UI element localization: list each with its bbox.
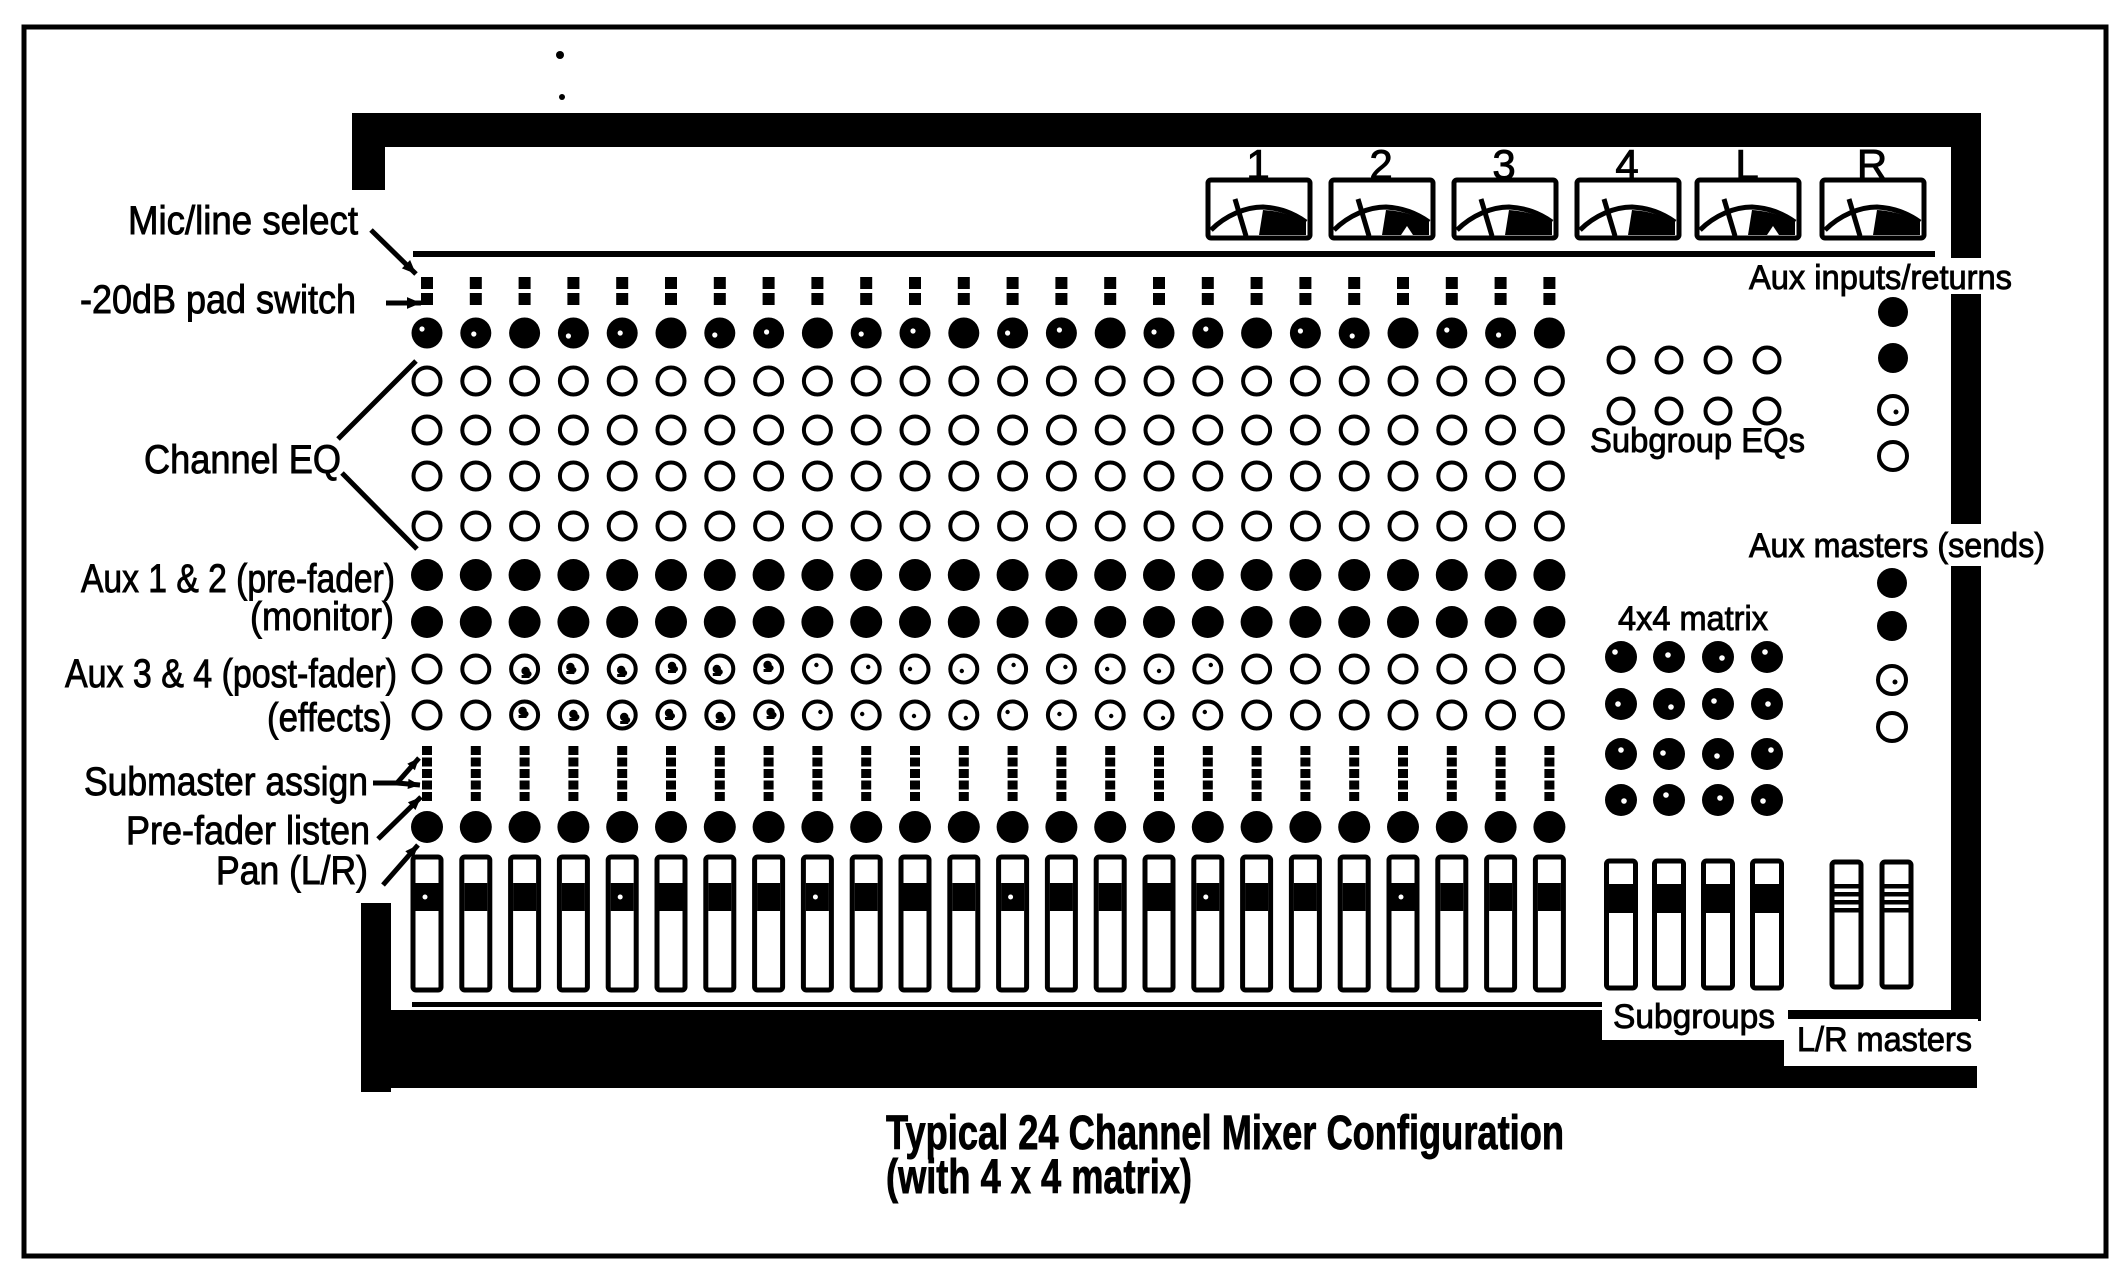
svg-text:Mic/line select: Mic/line select bbox=[128, 199, 358, 243]
svg-text:4: 4 bbox=[1615, 141, 1638, 188]
svg-text:(monitor): (monitor) bbox=[250, 595, 394, 639]
svg-text:(with 4 x 4 matrix): (with 4 x 4 matrix) bbox=[886, 1151, 1192, 1204]
svg-text:(effects): (effects) bbox=[267, 696, 392, 740]
svg-text:Subgroups: Subgroups bbox=[1613, 998, 1775, 1036]
svg-text:Channel EQ: Channel EQ bbox=[144, 438, 341, 482]
svg-text:-20dB pad switch: -20dB pad switch bbox=[80, 278, 356, 322]
svg-text:Subgroup EQs: Subgroup EQs bbox=[1590, 422, 1805, 460]
svg-text:Aux inputs/returns: Aux inputs/returns bbox=[1749, 259, 2012, 297]
svg-text:Submaster assign: Submaster assign bbox=[84, 760, 368, 804]
svg-text:Pan (L/R): Pan (L/R) bbox=[216, 849, 368, 893]
svg-text:2: 2 bbox=[1369, 141, 1392, 188]
svg-text:L/R masters: L/R masters bbox=[1797, 1021, 1972, 1059]
svg-text:4x4 matrix: 4x4 matrix bbox=[1618, 600, 1768, 638]
svg-text:Pre-fader listen: Pre-fader listen bbox=[126, 809, 370, 853]
svg-text:Aux 3 & 4 (post-fader): Aux 3 & 4 (post-fader) bbox=[65, 652, 397, 696]
svg-text:R: R bbox=[1857, 141, 1887, 188]
svg-text:Aux masters (sends): Aux masters (sends) bbox=[1749, 527, 2045, 565]
svg-text:1: 1 bbox=[1246, 141, 1269, 188]
svg-text:3: 3 bbox=[1492, 141, 1515, 188]
svg-text:L: L bbox=[1735, 141, 1758, 188]
